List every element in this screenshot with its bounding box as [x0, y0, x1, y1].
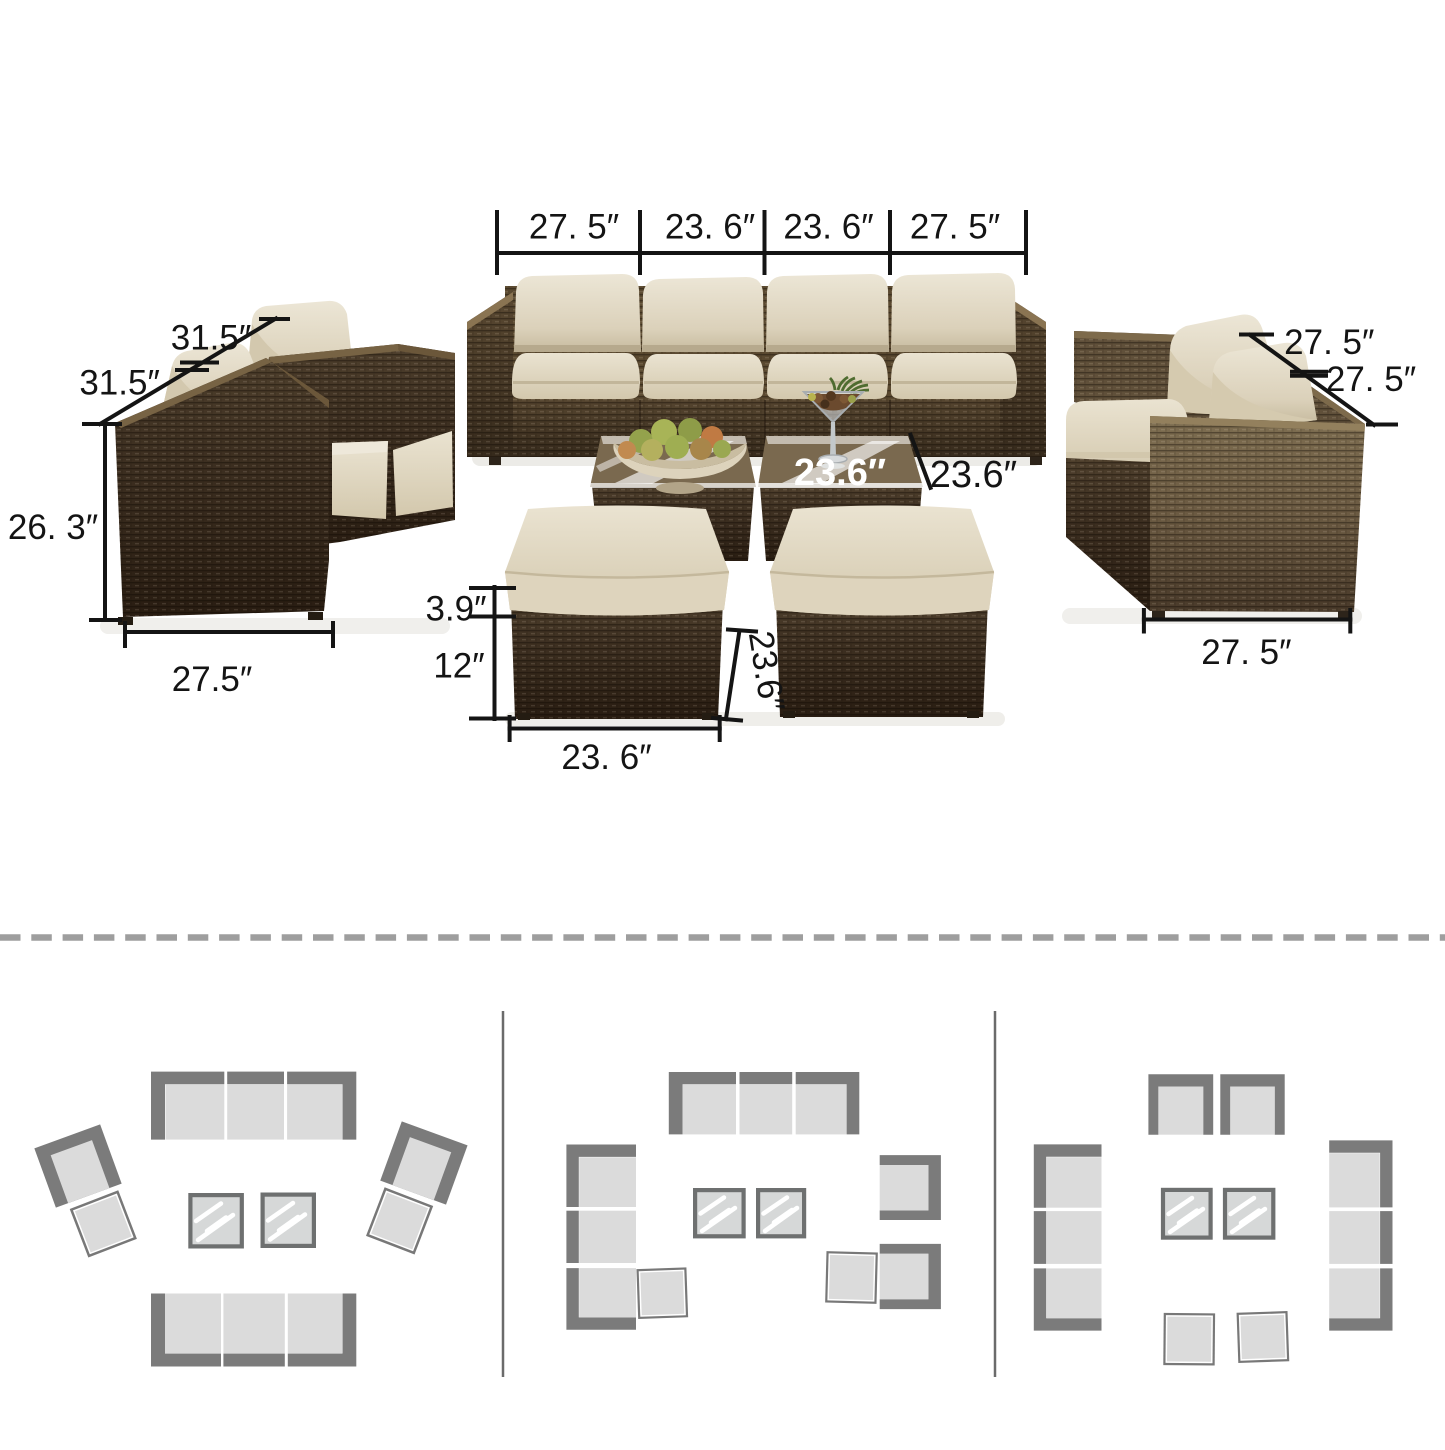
- svg-text:23. 6″: 23. 6″: [561, 738, 651, 777]
- svg-text:23. 6″: 23. 6″: [783, 208, 873, 247]
- svg-text:27. 5″: 27. 5″: [910, 208, 1000, 247]
- svg-text:27.5″: 27.5″: [172, 660, 253, 699]
- svg-text:27. 5″: 27. 5″: [1201, 633, 1291, 672]
- svg-text:26. 3″: 26. 3″: [8, 508, 98, 547]
- svg-text:23.6″: 23.6″: [794, 452, 886, 494]
- svg-text:27. 5″: 27. 5″: [1284, 323, 1374, 362]
- svg-text:23. 6″: 23. 6″: [665, 208, 755, 247]
- svg-text:27. 5″: 27. 5″: [1326, 360, 1416, 399]
- svg-text:3.9″: 3.9″: [425, 590, 486, 629]
- svg-text:27. 5″: 27. 5″: [529, 208, 619, 247]
- svg-text:12″: 12″: [433, 647, 484, 686]
- svg-text:23.6″: 23.6″: [930, 454, 1017, 496]
- svg-text:31.5″: 31.5″: [171, 319, 252, 358]
- svg-text:31.5″: 31.5″: [79, 364, 160, 403]
